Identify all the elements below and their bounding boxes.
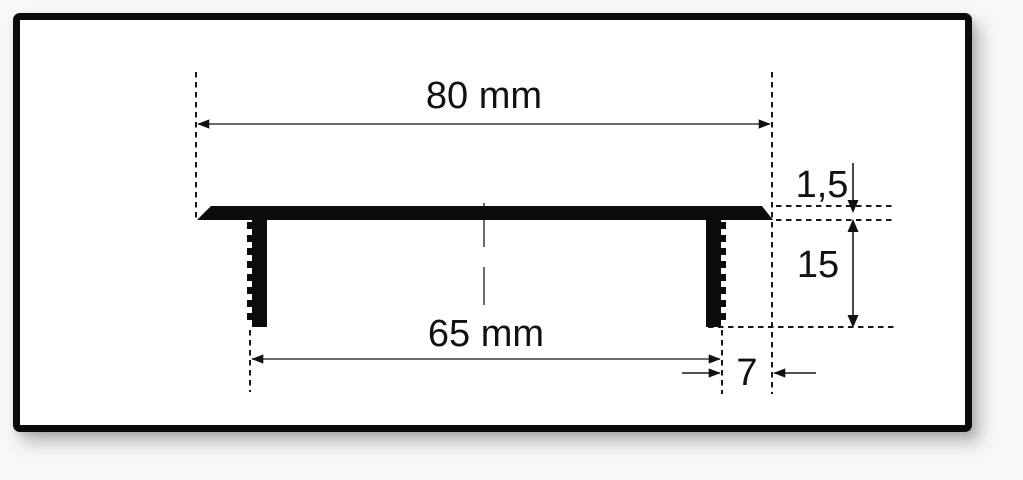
dim-label-leg-height: 15 — [797, 244, 839, 286]
profile-right-leg — [706, 219, 721, 327]
dim-label-total-width: 80 mm — [426, 75, 542, 117]
dim-label-thickness: 1,5 — [796, 164, 849, 206]
profile-left-leg — [252, 219, 267, 327]
profile-left-leg-teeth — [247, 222, 252, 323]
dim-label-edge-offset: 7 — [736, 352, 757, 394]
page-background: 80 mm 65 mm 7 1,5 15 — [0, 0, 1023, 480]
profile-right-leg-teeth — [721, 222, 726, 323]
dim-label-inner-width: 65 mm — [428, 313, 544, 355]
profile-top-plate — [197, 206, 773, 220]
technical-drawing-canvas: 80 mm 65 mm 7 1,5 15 — [0, 0, 1023, 480]
